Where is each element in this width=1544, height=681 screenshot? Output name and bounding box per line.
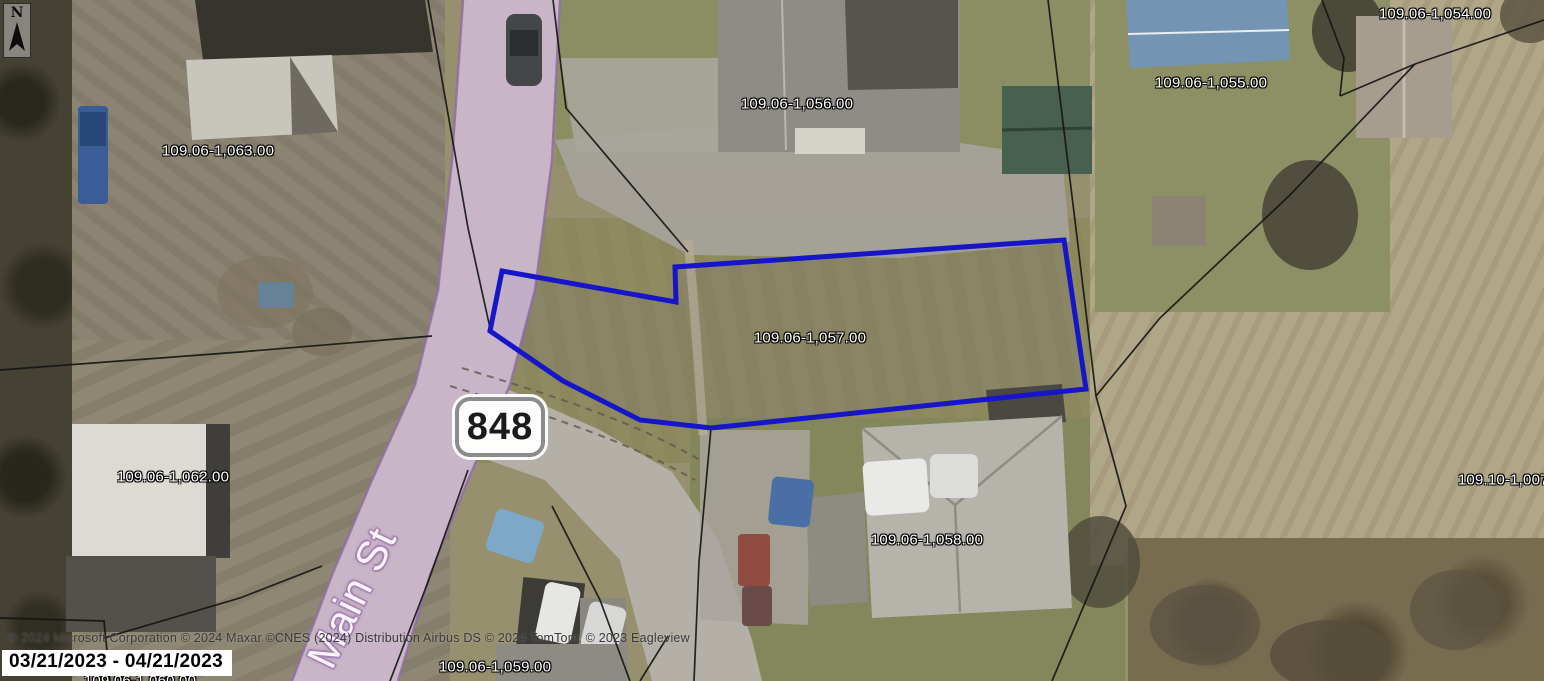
north-label: N <box>11 5 24 21</box>
route-shield-848: 848 <box>455 397 545 457</box>
parcel-label: 109.06-1,063.00 <box>162 143 274 160</box>
north-arrow-icon <box>7 21 27 53</box>
route-shield-number: 848 <box>467 406 533 449</box>
parcel-label: 109.06-1,054.00 <box>1379 6 1491 23</box>
parcel-label: 109.06-1,059.00 <box>439 659 551 676</box>
parcel-labels-layer: 109.06-1,063.00109.06-1,056.00109.06-1,0… <box>0 0 1544 681</box>
parcel-label: 109.06-1,055.00 <box>1155 75 1267 92</box>
parcel-label: 109.10-1,007.00 <box>1458 472 1544 489</box>
parcel-label: 109.06-1,057.00 <box>754 330 866 347</box>
map-viewport[interactable]: 109.06-1,063.00109.06-1,056.00109.06-1,0… <box>0 0 1544 681</box>
north-arrow: N <box>3 3 31 58</box>
copyright-attribution: © 2024 Microsoft Corporation © 2024 Maxa… <box>8 631 690 645</box>
parcel-label: 109.06-1,056.00 <box>741 96 853 113</box>
imagery-date-range: 03/21/2023 - 04/21/2023 <box>2 650 232 676</box>
parcel-label: 109.06-1,062.00 <box>117 469 229 486</box>
parcel-label: 109.06-1,058.00 <box>871 532 983 549</box>
